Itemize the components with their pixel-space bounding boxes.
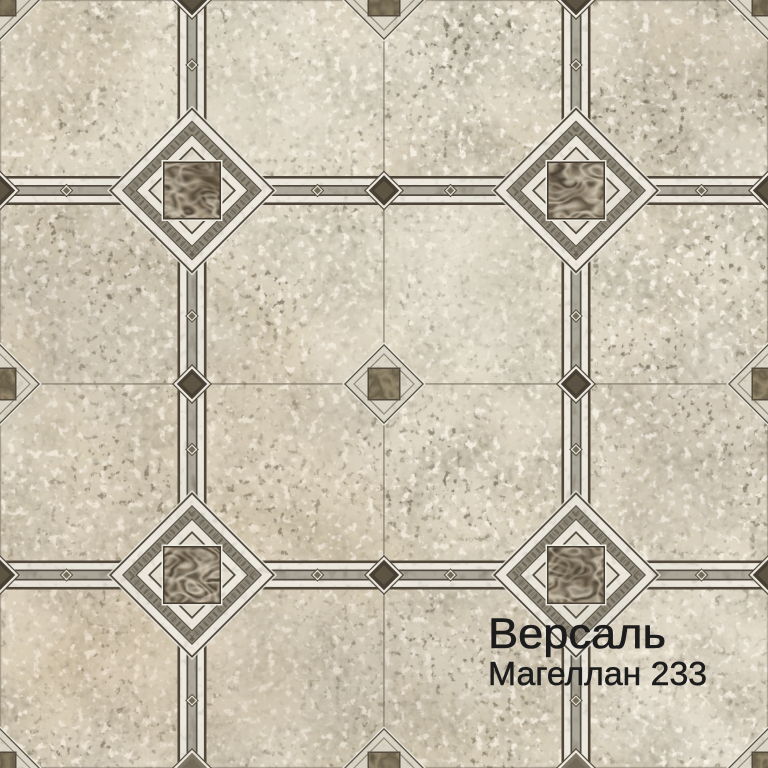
svg-text:Версаль: Версаль (488, 610, 666, 658)
svg-text:Магеллан 233: Магеллан 233 (488, 655, 707, 692)
